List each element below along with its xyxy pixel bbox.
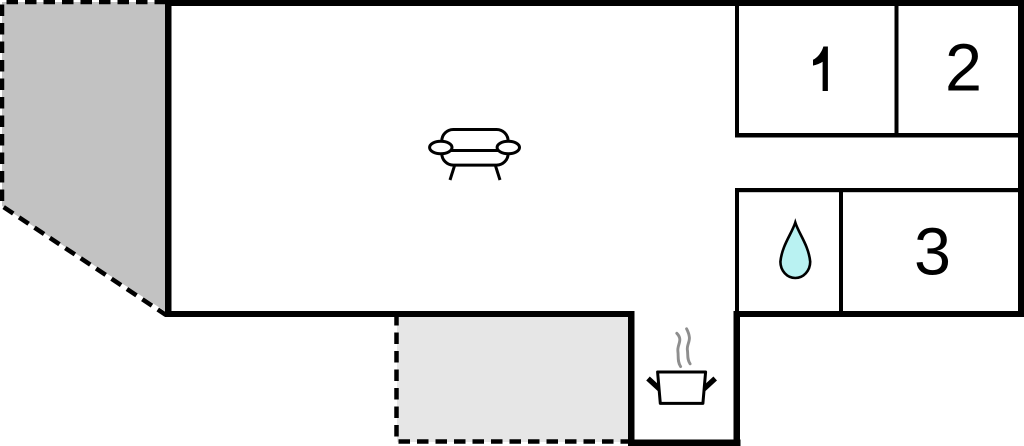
svg-text:3: 3	[914, 216, 951, 290]
svg-text:2: 2	[945, 32, 982, 106]
